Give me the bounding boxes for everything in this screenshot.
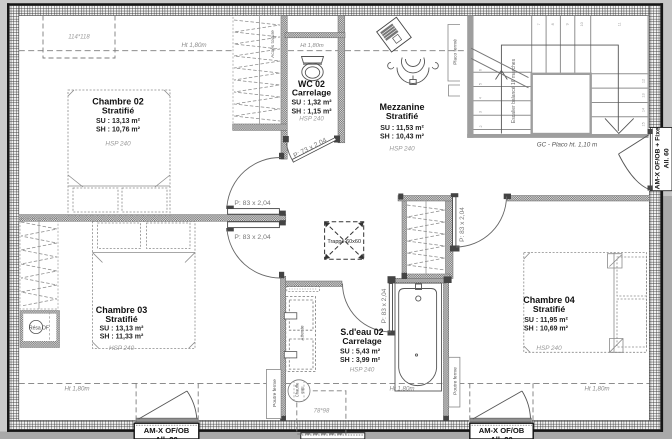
svg-text:Escalier balancé 16 marches: Escalier balancé 16 marches	[511, 58, 517, 123]
svg-text:SH : 1,15 m²: SH : 1,15 m²	[291, 108, 332, 115]
svg-text:15: 15	[642, 122, 646, 126]
svg-text:7: 7	[537, 23, 541, 25]
svg-text:HSP 240: HSP 240	[389, 146, 415, 153]
svg-text:HSP 240: HSP 240	[536, 345, 562, 352]
svg-text:Ht 1,80m: Ht 1,80m	[300, 43, 324, 49]
svg-text:Carrelage: Carrelage	[342, 336, 381, 346]
svg-text:Attente: Attente	[300, 325, 306, 341]
svg-text:Carrelage: Carrelage	[292, 87, 331, 97]
svg-text:2: 2	[479, 125, 483, 127]
svg-text:Poutre ferme: Poutre ferme	[272, 379, 278, 407]
svg-text:SH : 11,33 m²: SH : 11,33 m²	[100, 334, 144, 341]
svg-text:13: 13	[642, 93, 646, 97]
svg-text:HSP 240: HSP 240	[109, 345, 135, 352]
svg-text:SU : 5,43 m²: SU : 5,43 m²	[340, 348, 381, 355]
svg-text:Ht 1,80m: Ht 1,80m	[181, 42, 206, 49]
svg-text:10: 10	[580, 22, 584, 26]
svg-text:5: 5	[479, 83, 483, 85]
svg-text:HSP 240: HSP 240	[299, 116, 324, 123]
svg-text:P: 83 x 2,04: P: 83 x 2,04	[459, 207, 466, 242]
svg-text:SH : 10,43 m²: SH : 10,43 m²	[380, 134, 425, 141]
svg-text:All. 20: All. 20	[155, 435, 177, 439]
svg-text:P: 83 x 2,04: P: 83 x 2,04	[234, 200, 270, 207]
svg-text:3: 3	[479, 111, 483, 113]
svg-text:SU : 11,95 m²: SU : 11,95 m²	[524, 317, 568, 324]
svg-text:14: 14	[642, 108, 646, 112]
svg-text:Stratifié: Stratifié	[386, 111, 419, 121]
svg-text:SH : 10,76 m²: SH : 10,76 m²	[96, 126, 141, 133]
svg-text:Trappe 60x60: Trappe 60x60	[327, 239, 361, 245]
svg-text:AM-X OF/OB: AM-X OF/OB	[479, 426, 525, 435]
svg-text:All. 60: All. 60	[663, 148, 670, 168]
svg-text:AM-X OF/OB + Fixe: AM-X OF/OB + Fixe	[655, 127, 662, 189]
svg-text:SU : 1,32 m²: SU : 1,32 m²	[291, 99, 332, 106]
svg-text:SH : 3,99 m²: SH : 3,99 m²	[340, 357, 381, 364]
svg-text:8: 8	[551, 23, 555, 25]
svg-text:SU : 11,53 m²: SU : 11,53 m²	[380, 125, 424, 132]
svg-text:Placo fermé: Placo fermé	[453, 39, 459, 65]
svg-text:P: 83 x 2,04: P: 83 x 2,04	[234, 234, 270, 241]
svg-text:eau: eau	[300, 386, 305, 394]
svg-text:Ht 1,80m: Ht 1,80m	[584, 385, 609, 392]
svg-text:Résa OF: Résa OF	[29, 325, 49, 331]
svg-text:114*118: 114*118	[68, 35, 90, 41]
svg-text:Stratifié: Stratifié	[533, 304, 566, 314]
svg-text:AM-X OF/OB: AM-X OF/OB	[144, 426, 190, 435]
svg-text:SU : 13,13 m²: SU : 13,13 m²	[96, 118, 141, 125]
svg-text:6: 6	[479, 69, 483, 71]
svg-text:Stratifié: Stratifié	[105, 314, 138, 324]
svg-text:GC - Placo ht. 1,10 m: GC - Placo ht. 1,10 m	[537, 142, 598, 149]
svg-text:HSP 240: HSP 240	[105, 141, 131, 148]
svg-text:Ht 1,80m: Ht 1,80m	[64, 385, 89, 392]
svg-text:HSP 240: HSP 240	[350, 367, 375, 374]
svg-text:12: 12	[642, 79, 646, 83]
svg-text:4: 4	[479, 97, 483, 99]
svg-text:Accès toiture: Accès toiture	[270, 30, 276, 58]
svg-text:78*98: 78*98	[314, 409, 330, 415]
svg-text:P: 83 x 2,04: P: 83 x 2,04	[381, 288, 388, 323]
svg-text:SU : 13,13 m²: SU : 13,13 m²	[100, 325, 145, 332]
svg-text:9: 9	[566, 23, 570, 25]
svg-text:11: 11	[617, 22, 621, 26]
svg-text:SH : 10,69 m²: SH : 10,69 m²	[524, 326, 569, 333]
svg-text:All. 20: All. 20	[490, 435, 512, 439]
svg-text:Stratifié: Stratifié	[102, 106, 135, 116]
svg-text:Poutre ferme: Poutre ferme	[452, 367, 458, 395]
